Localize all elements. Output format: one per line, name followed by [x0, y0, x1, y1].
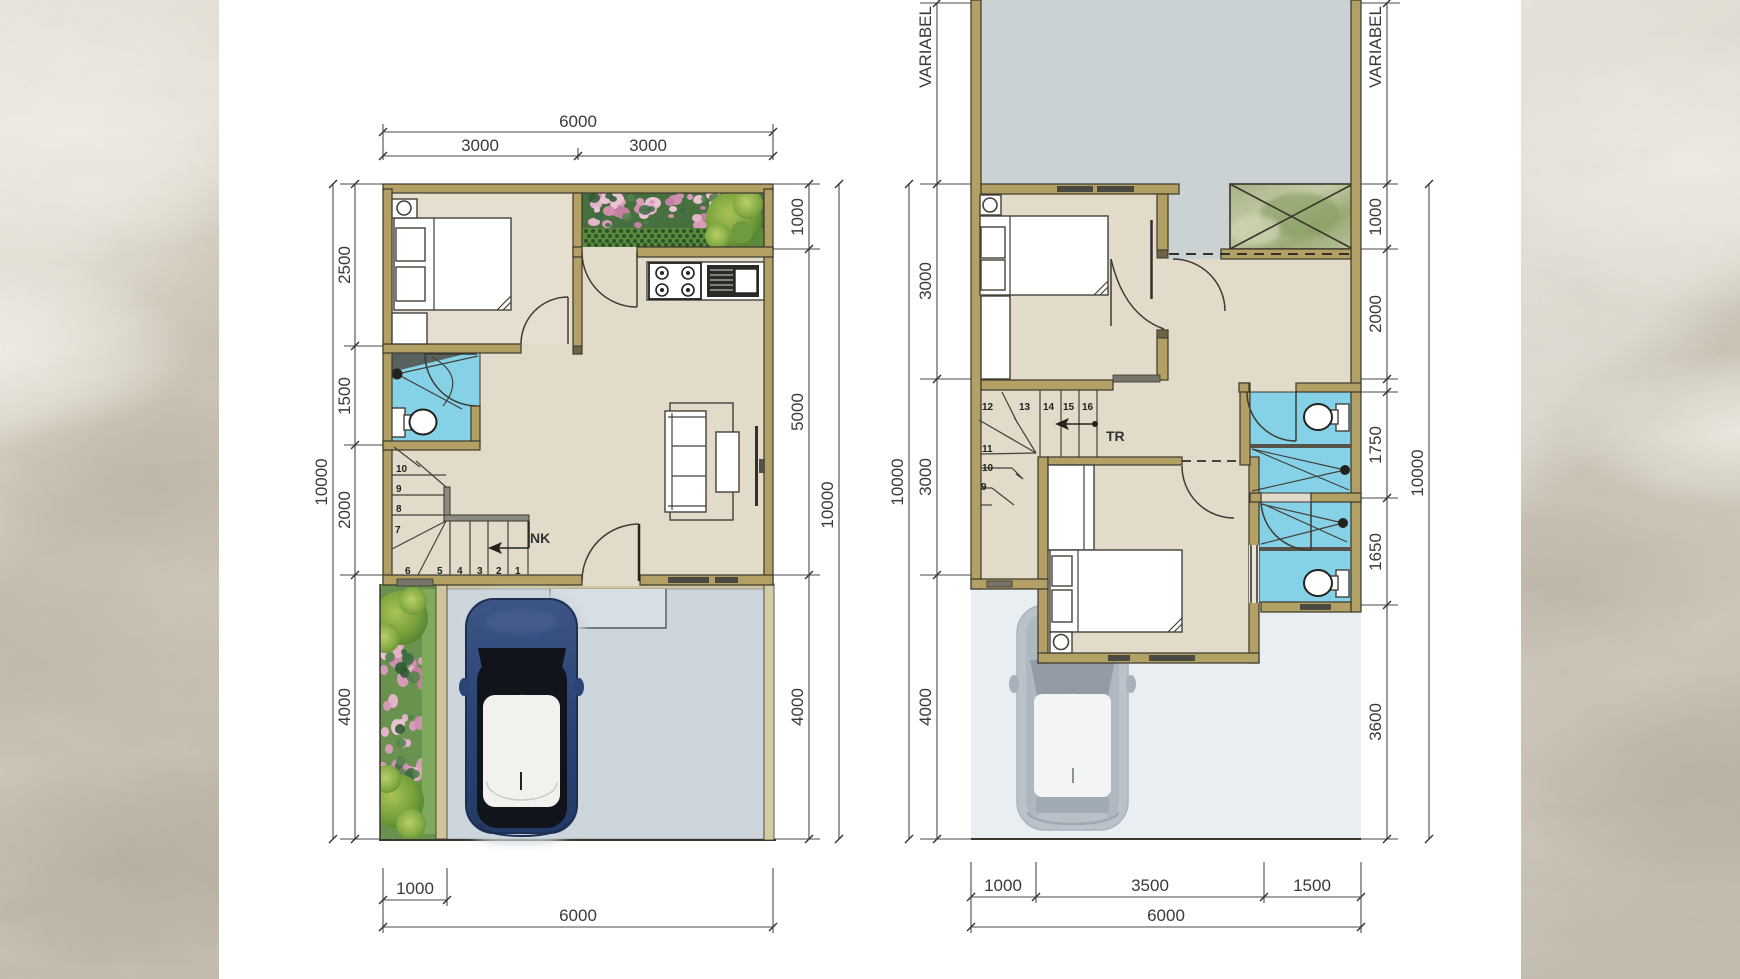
svg-text:2: 2: [496, 566, 502, 577]
svg-text:4000: 4000: [788, 688, 807, 726]
svg-text:VARIABEL: VARIABEL: [916, 6, 935, 88]
svg-text:8: 8: [396, 504, 402, 515]
svg-text:1000: 1000: [788, 198, 807, 236]
svg-text:6000: 6000: [559, 112, 597, 131]
svg-text:4: 4: [457, 566, 463, 577]
svg-text:NK: NK: [530, 530, 550, 546]
svg-text:5000: 5000: [788, 393, 807, 431]
svg-text:4000: 4000: [335, 688, 354, 726]
svg-text:1: 1: [515, 566, 521, 577]
svg-text:2000: 2000: [1366, 295, 1385, 333]
svg-text:6000: 6000: [559, 906, 597, 925]
svg-text:1000: 1000: [1366, 198, 1385, 236]
svg-text:9: 9: [981, 482, 987, 493]
svg-text:10000: 10000: [1408, 449, 1427, 496]
svg-text:6000: 6000: [1147, 906, 1185, 925]
svg-text:10000: 10000: [888, 458, 907, 505]
svg-text:1650: 1650: [1366, 533, 1385, 571]
svg-text:5: 5: [437, 566, 443, 577]
svg-text:16: 16: [1082, 402, 1094, 413]
svg-text:3000: 3000: [629, 136, 667, 155]
svg-text:VARIABEL: VARIABEL: [1366, 6, 1385, 88]
svg-text:3600: 3600: [1366, 703, 1385, 741]
svg-text:10: 10: [396, 464, 408, 475]
svg-text:6: 6: [405, 566, 411, 577]
svg-text:1500: 1500: [335, 377, 354, 415]
svg-text:13: 13: [1019, 402, 1031, 413]
svg-text:3: 3: [477, 566, 483, 577]
svg-text:12: 12: [982, 402, 994, 413]
svg-text:15: 15: [1063, 402, 1075, 413]
svg-text:3500: 3500: [1131, 876, 1169, 895]
svg-text:TR: TR: [1106, 428, 1125, 444]
svg-text:14: 14: [1043, 402, 1055, 413]
svg-text:10000: 10000: [312, 458, 331, 505]
svg-text:1000: 1000: [984, 876, 1022, 895]
svg-text:1750: 1750: [1366, 426, 1385, 464]
svg-text:10: 10: [982, 463, 994, 474]
svg-text:7: 7: [395, 525, 401, 536]
svg-text:3000: 3000: [916, 458, 935, 496]
svg-text:1500: 1500: [1293, 876, 1331, 895]
svg-text:11: 11: [982, 444, 993, 455]
svg-text:3000: 3000: [461, 136, 499, 155]
svg-text:4000: 4000: [916, 688, 935, 726]
svg-text:2000: 2000: [335, 491, 354, 529]
svg-text:9: 9: [396, 484, 402, 495]
svg-text:2500: 2500: [335, 246, 354, 284]
svg-text:1000: 1000: [396, 879, 434, 898]
svg-text:3000: 3000: [916, 262, 935, 300]
svg-text:10000: 10000: [818, 481, 837, 528]
